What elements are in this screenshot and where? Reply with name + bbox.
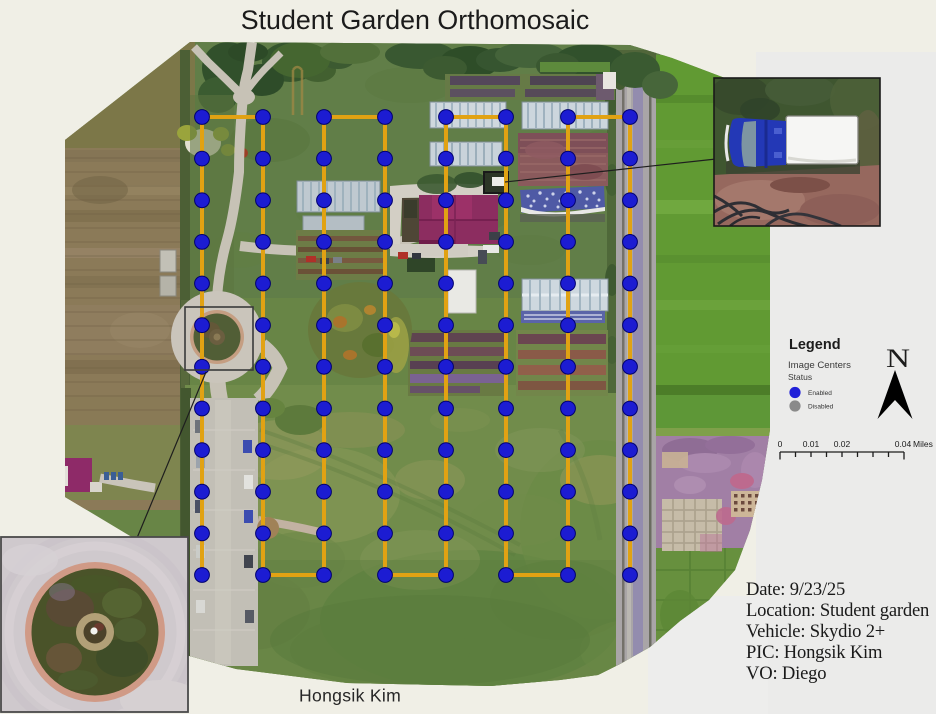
svg-text:Hongsik Kim: Hongsik Kim xyxy=(299,686,401,706)
svg-text:VO: Diego: VO: Diego xyxy=(746,663,826,684)
svg-text:Vehicle: Skydio 2+: Vehicle: Skydio 2+ xyxy=(746,621,885,642)
svg-text:PIC: Hongsik Kim: PIC: Hongsik Kim xyxy=(746,642,883,663)
svg-text:Legend: Legend xyxy=(789,337,841,353)
svg-text:0: 0 xyxy=(778,439,783,449)
svg-text:Miles: Miles xyxy=(913,439,933,449)
svg-text:0.01: 0.01 xyxy=(803,439,820,449)
svg-text:Location: Student garden: Location: Student garden xyxy=(746,600,930,621)
svg-text:0.04: 0.04 xyxy=(895,439,912,449)
svg-text:Enabled: Enabled xyxy=(808,390,832,397)
svg-text:Student Garden Orthomosaic: Student Garden Orthomosaic xyxy=(241,5,590,35)
svg-text:N: N xyxy=(886,344,910,373)
svg-text:Disabled: Disabled xyxy=(808,404,834,411)
svg-text:Date: 9/23/25: Date: 9/23/25 xyxy=(746,579,845,600)
svg-text:Image Centers: Image Centers xyxy=(788,360,851,371)
svg-text:0.02: 0.02 xyxy=(834,439,851,449)
svg-text:Status: Status xyxy=(788,372,812,382)
